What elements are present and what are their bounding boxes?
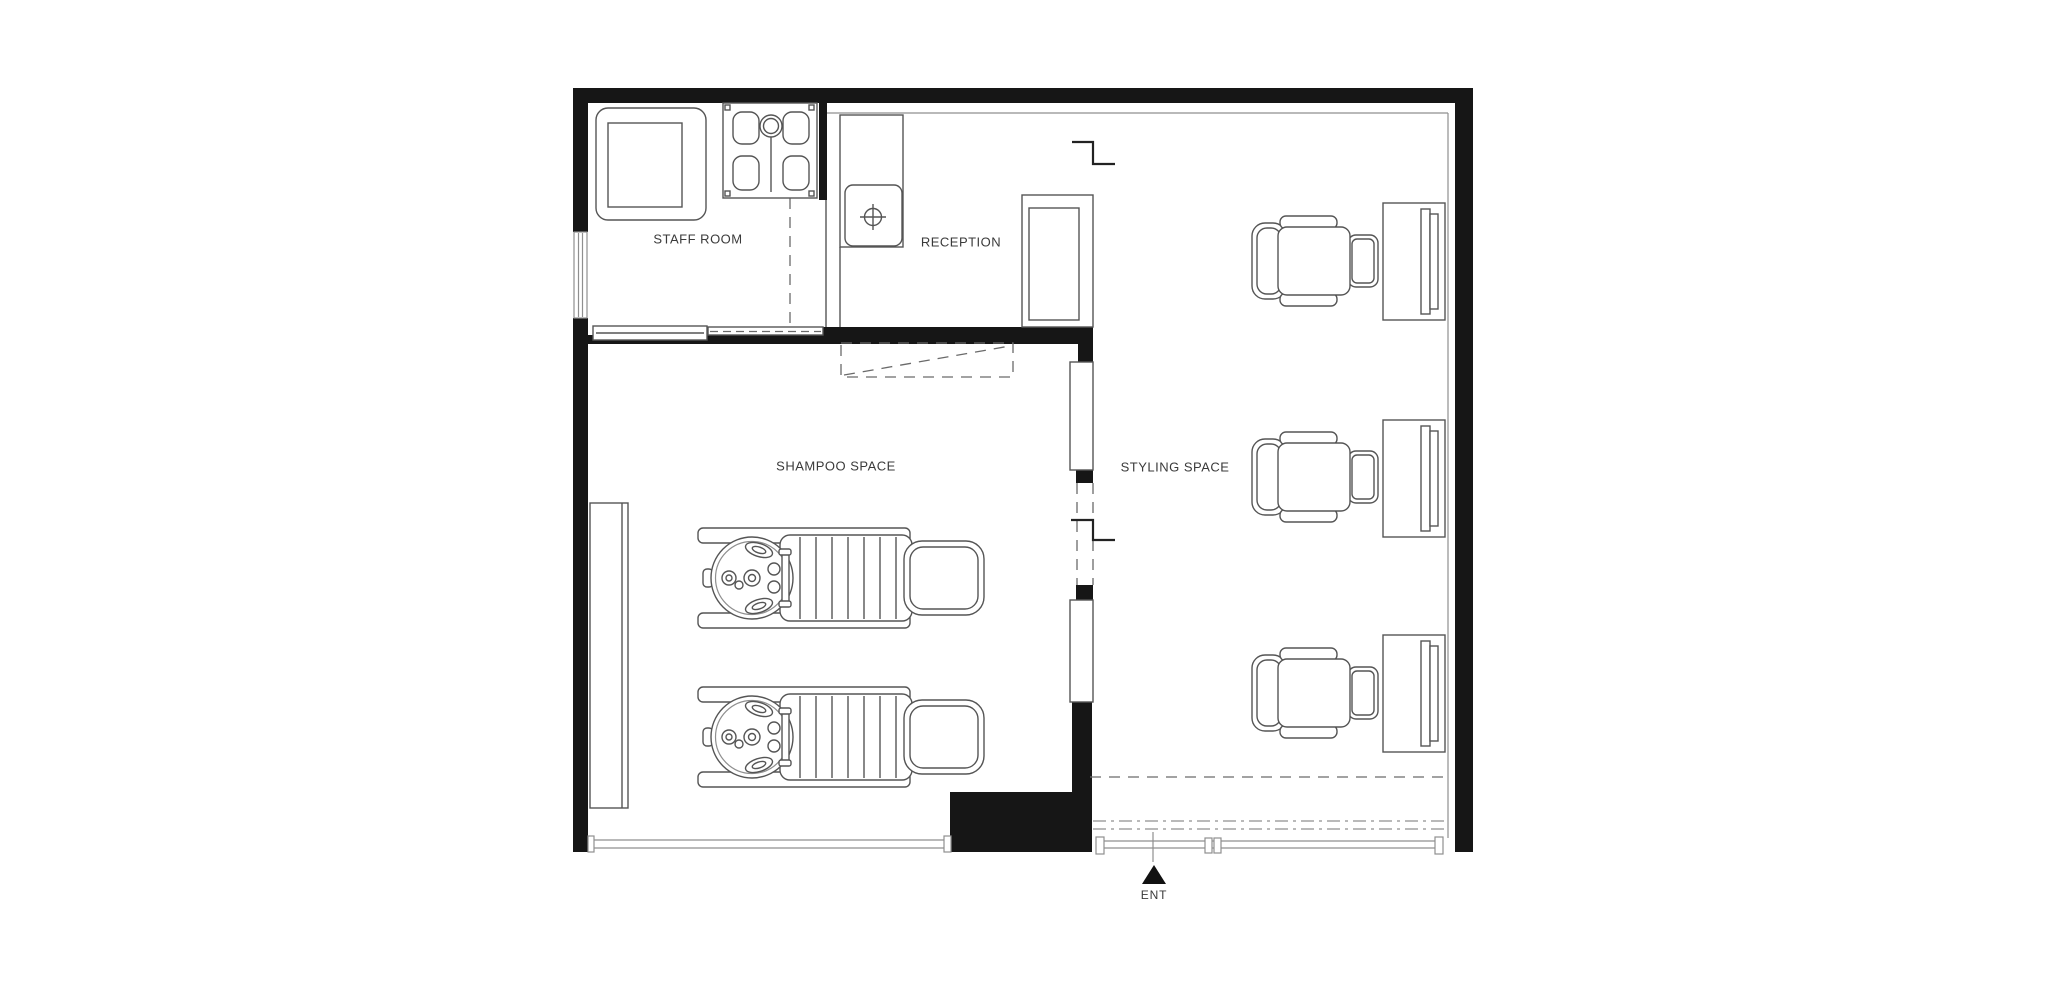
styling-station	[1383, 635, 1445, 752]
room-label-shampoo-space: SHAMPOO SPACE	[776, 459, 896, 474]
room-label-staff-room: STAFF ROOM	[653, 232, 742, 247]
styling-station	[1383, 203, 1445, 320]
floor-plan-page: STAFF ROOM RECEPTION SHAMPOO SPACE STYLI…	[0, 0, 2048, 992]
styling-station	[1383, 420, 1445, 537]
entrance-arrow-icon	[1142, 865, 1166, 884]
left-window	[574, 232, 587, 318]
shampoo-bench	[590, 503, 628, 808]
shampoo-unit	[698, 528, 984, 628]
styling-chair	[1252, 648, 1378, 738]
floor-plan-drawing	[0, 0, 2048, 992]
shower-unit	[723, 103, 817, 198]
sink-counter	[840, 115, 903, 247]
reception-desk	[1022, 195, 1093, 327]
entrance-label: ENT	[1141, 888, 1167, 902]
staff-table	[596, 108, 706, 220]
partition-columns	[1070, 362, 1093, 702]
room-label-reception: RECEPTION	[921, 235, 1001, 250]
shampoo-unit	[698, 687, 984, 787]
room-label-styling-space: STYLING SPACE	[1121, 460, 1230, 475]
styling-chair	[1252, 216, 1378, 306]
styling-chair	[1252, 432, 1378, 522]
